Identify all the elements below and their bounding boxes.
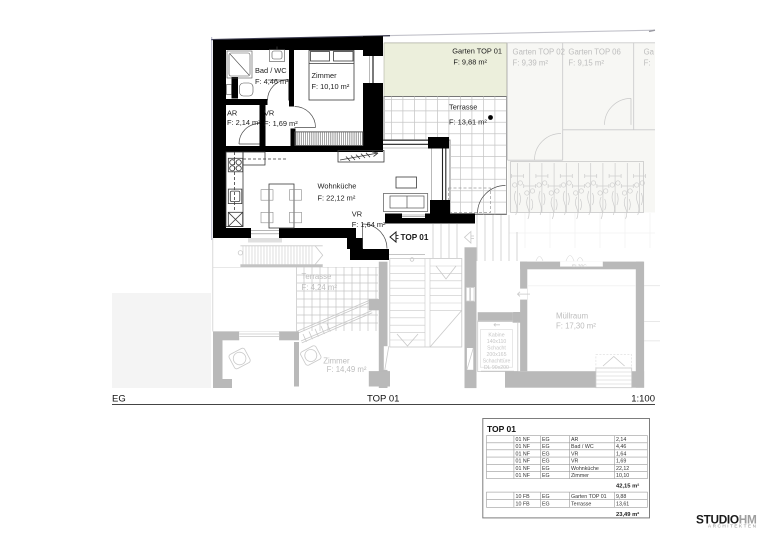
svg-text:Schacht: Schacht bbox=[487, 346, 506, 352]
svg-text:EG: EG bbox=[112, 394, 126, 405]
svg-text:AR: AR bbox=[571, 437, 579, 443]
svg-text:EG: EG bbox=[542, 473, 550, 479]
svg-text:23,49 m²: 23,49 m² bbox=[616, 511, 639, 518]
svg-text:EG: EG bbox=[542, 494, 550, 500]
svg-text:10,10: 10,10 bbox=[616, 473, 629, 479]
svg-text:1:100: 1:100 bbox=[631, 394, 655, 405]
svg-text:10 FB: 10 FB bbox=[516, 494, 531, 500]
svg-text:VR: VR bbox=[571, 451, 579, 457]
svg-text:Müllraum: Müllraum bbox=[556, 312, 588, 321]
svg-text:F: 2,14 m²: F: 2,14 m² bbox=[227, 118, 261, 127]
svg-text:EG: EG bbox=[542, 466, 550, 472]
svg-text:01 NF: 01 NF bbox=[516, 459, 531, 465]
svg-text:2,14: 2,14 bbox=[616, 437, 626, 443]
svg-text:VR: VR bbox=[571, 459, 579, 465]
svg-text:Terrasse: Terrasse bbox=[449, 103, 477, 112]
svg-text:TOP 01: TOP 01 bbox=[487, 424, 516, 434]
svg-text:EG: EG bbox=[542, 459, 550, 465]
svg-text:TOP 01: TOP 01 bbox=[401, 233, 429, 242]
svg-text:01 NF: 01 NF bbox=[516, 473, 531, 479]
svg-text:F: 9,39 m²: F: 9,39 m² bbox=[513, 59, 549, 68]
svg-text:F: 1,64 m²: F: 1,64 m² bbox=[352, 220, 386, 229]
svg-text:F: 4,46 m²: F: 4,46 m² bbox=[255, 77, 289, 86]
svg-text:Kabine: Kabine bbox=[488, 333, 504, 339]
svg-text:9,88: 9,88 bbox=[616, 494, 626, 500]
svg-text:Zimmer: Zimmer bbox=[312, 71, 338, 80]
svg-text:F: 22,12 m²: F: 22,12 m² bbox=[318, 194, 356, 203]
svg-text:F: 4,24 m²: F: 4,24 m² bbox=[302, 283, 338, 292]
svg-text:ARCHITEKTEN: ARCHITEKTEN bbox=[708, 524, 757, 529]
svg-text:EG: EG bbox=[542, 437, 550, 443]
svg-text:Garten TOP 01: Garten TOP 01 bbox=[452, 47, 502, 56]
svg-text:200x165: 200x165 bbox=[487, 352, 507, 358]
svg-text:Wohnküche: Wohnküche bbox=[571, 466, 599, 472]
svg-text:22,12: 22,12 bbox=[616, 466, 629, 472]
svg-text:VR: VR bbox=[264, 109, 274, 118]
svg-text:Ga: Ga bbox=[644, 48, 655, 57]
svg-text:Terrasse: Terrasse bbox=[571, 501, 591, 507]
svg-text:TOP 01: TOP 01 bbox=[367, 394, 399, 405]
svg-text:DL 90x200: DL 90x200 bbox=[484, 365, 509, 371]
svg-text:AR: AR bbox=[227, 109, 237, 118]
svg-text:Garten TOP 02: Garten TOP 02 bbox=[513, 48, 565, 57]
svg-text:4,46: 4,46 bbox=[616, 444, 626, 450]
svg-text:F: 10,10 m²: F: 10,10 m² bbox=[312, 82, 350, 91]
svg-text:01 NF: 01 NF bbox=[516, 437, 531, 443]
svg-text:F:: F: bbox=[644, 59, 651, 68]
svg-text:EG: EG bbox=[542, 451, 550, 457]
svg-text:42,15 m²: 42,15 m² bbox=[616, 483, 639, 490]
svg-text:F: 13,61 m²: F: 13,61 m² bbox=[449, 118, 487, 127]
svg-text:Schachttüre: Schachttüre bbox=[483, 359, 511, 365]
svg-text:1,64: 1,64 bbox=[616, 451, 626, 457]
svg-text:VR: VR bbox=[352, 210, 362, 219]
svg-text:Garten TOP 06: Garten TOP 06 bbox=[568, 48, 620, 57]
svg-text:Terrasse: Terrasse bbox=[302, 272, 332, 281]
svg-text:EG: EG bbox=[542, 444, 550, 450]
svg-text:Bad / WC: Bad / WC bbox=[571, 444, 594, 450]
svg-text:F: 17,30 m²: F: 17,30 m² bbox=[556, 322, 596, 331]
svg-text:01 NF: 01 NF bbox=[516, 451, 531, 457]
svg-text:1,69: 1,69 bbox=[616, 459, 626, 465]
svg-text:140x110: 140x110 bbox=[487, 339, 507, 345]
svg-text:01 NF: 01 NF bbox=[516, 444, 531, 450]
svg-text:Zimmer: Zimmer bbox=[571, 473, 589, 479]
svg-text:F: 1,69 m²: F: 1,69 m² bbox=[264, 119, 298, 128]
svg-text:10 FB: 10 FB bbox=[516, 501, 531, 507]
svg-text:F: 9,15 m²: F: 9,15 m² bbox=[568, 59, 604, 68]
svg-text:F: 9,88 m²: F: 9,88 m² bbox=[453, 58, 487, 67]
svg-text:Wohnküche: Wohnküche bbox=[318, 182, 357, 191]
svg-text:F: 14,49 m²: F: 14,49 m² bbox=[327, 365, 367, 374]
svg-text:01 NF: 01 NF bbox=[516, 466, 531, 472]
svg-text:EG: EG bbox=[542, 501, 550, 507]
svg-text:Bad / WC: Bad / WC bbox=[255, 66, 287, 75]
svg-text:Garten TOP 01: Garten TOP 01 bbox=[571, 494, 607, 500]
svg-text:13,61: 13,61 bbox=[616, 501, 629, 507]
